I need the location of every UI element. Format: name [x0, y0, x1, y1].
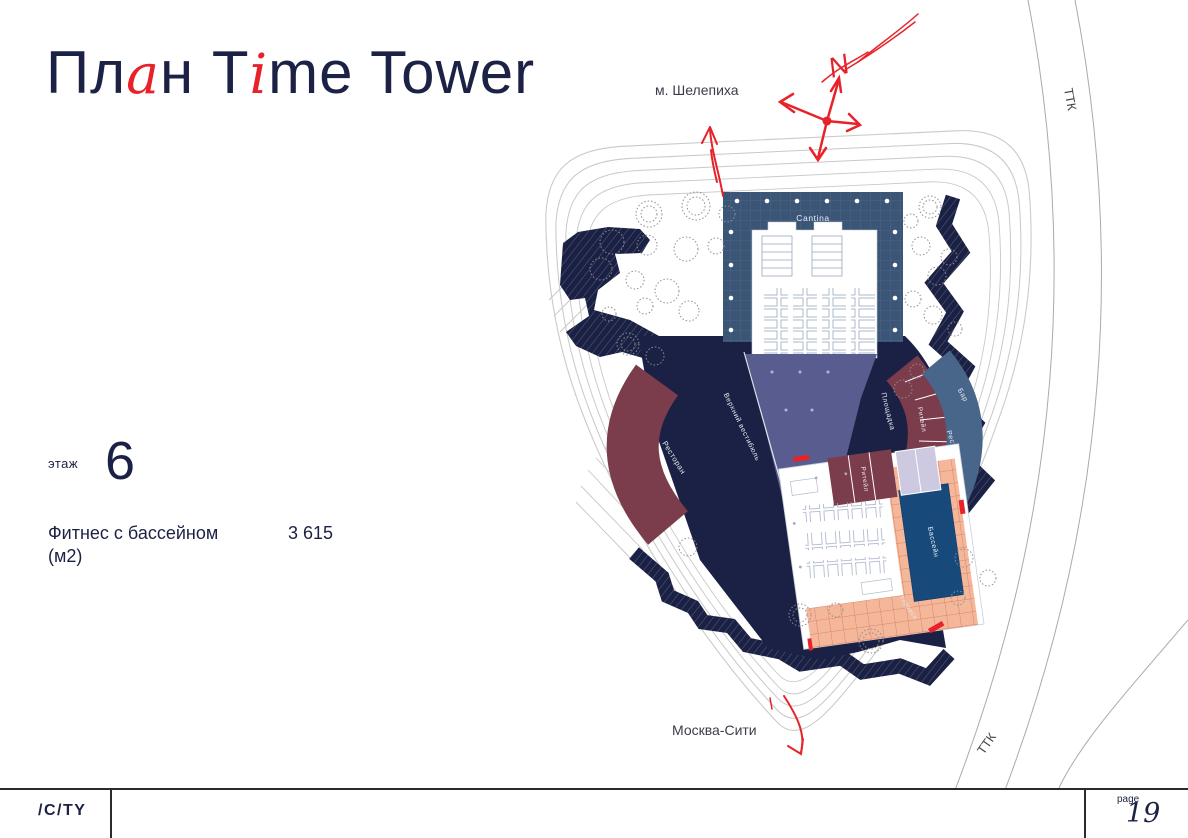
compass-icon	[780, 78, 860, 160]
area-value: 3 615	[288, 522, 333, 545]
metro-arrow	[702, 127, 723, 196]
page-number: 19	[1126, 798, 1160, 829]
zone-fitness: Ритейл Бассейн Терраса	[777, 434, 984, 651]
road-label-ttk-top: ТТК	[1061, 87, 1079, 112]
title-segment: Пл	[46, 39, 126, 106]
title-segment-red: i	[250, 43, 269, 107]
title-segment: T	[194, 39, 249, 106]
title-segment-red: а	[126, 43, 160, 107]
title-segment: н	[160, 39, 194, 106]
zone-cantina: Cantina	[723, 192, 903, 358]
brand-logo: /C/TY	[38, 802, 86, 820]
floor-plan-svg: Cantina Верхний вестибюль Ресторан Ритей…	[540, 0, 1188, 790]
floor-number: 6	[105, 430, 135, 492]
area-label-line2: (м2)	[48, 545, 258, 568]
north-label: N	[824, 48, 854, 84]
page-title: План Time Tower	[46, 38, 535, 107]
area-info: Фитнес с бассейном (м2) 3 615	[48, 522, 388, 569]
floor-label: этаж	[48, 456, 78, 471]
zone-label-cantina: Cantina	[796, 213, 830, 223]
road-label-ttk-bottom: ТТК	[975, 730, 1000, 757]
title-segment: me Tower	[268, 39, 535, 106]
gym-equipment	[802, 500, 887, 578]
zone-restaurant-left	[633, 380, 668, 528]
footer-divider-right	[1084, 790, 1086, 838]
footer-divider-left	[110, 790, 112, 838]
metro-label: м. Шелепиха	[655, 82, 739, 98]
area-label: Фитнес с бассейном (м2)	[48, 522, 258, 569]
footer: /C/TY page 19	[0, 788, 1188, 838]
slide: План Time Tower этаж 6 Фитнес с бассейно…	[0, 0, 1188, 838]
area-label-line1: Фитнес с бассейном	[48, 522, 258, 545]
city-label: Москва-Сити	[672, 722, 757, 738]
